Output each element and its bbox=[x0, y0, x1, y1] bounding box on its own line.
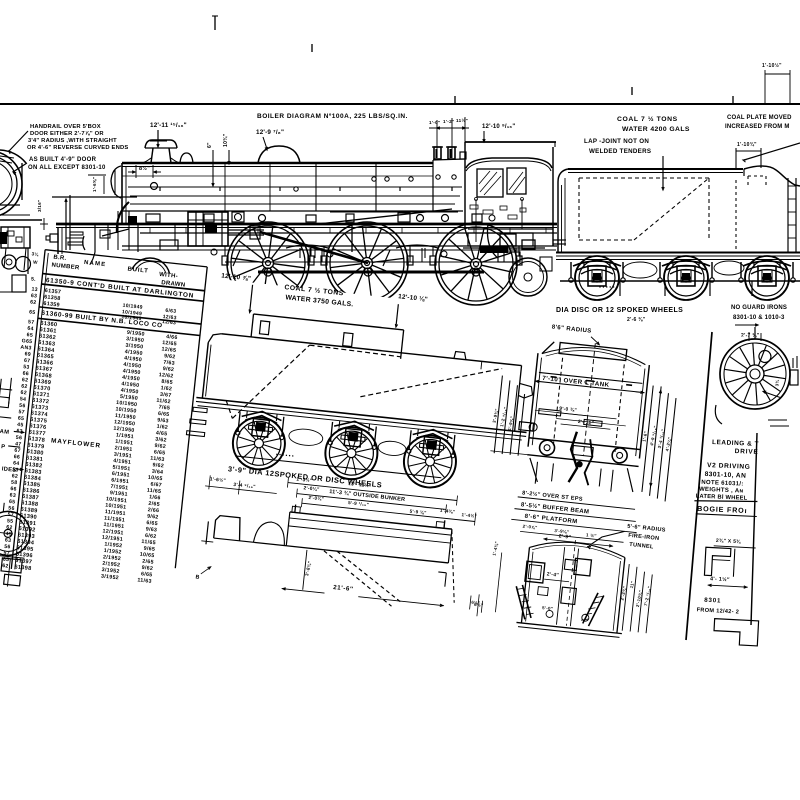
svg-text:1'-6⅝": 1'-6⅝" bbox=[92, 177, 97, 192]
svg-text:OR 4'-6" REVERSE CURVED ENDS: OR 4'-6" REVERSE CURVED ENDS bbox=[27, 145, 128, 151]
svg-text:4'- 1½″: 4'- 1½″ bbox=[710, 575, 730, 583]
svg-text:1'-10¾": 1'-10¾" bbox=[737, 141, 757, 148]
svg-text:P: P bbox=[1, 444, 6, 450]
svg-text:2¾" X 5¾: 2¾" X 5¾ bbox=[716, 537, 742, 545]
svg-text:62: 62 bbox=[2, 563, 9, 570]
svg-text:B: B bbox=[195, 574, 200, 580]
svg-text:WATER 4200 GALS: WATER 4200 GALS bbox=[622, 126, 690, 133]
svg-text:WELDED TENDERS: WELDED TENDERS bbox=[589, 148, 651, 155]
svg-text:3'4" RADIUS ,WITH STRAIGHT: 3'4" RADIUS ,WITH STRAIGHT bbox=[28, 138, 117, 144]
svg-text:AM: AM bbox=[0, 429, 10, 436]
svg-text:12'-10 ⁹/₁₆": 12'-10 ⁹/₁₆" bbox=[482, 124, 515, 130]
svg-text:COAL PLATE MOVED: COAL PLATE MOVED bbox=[727, 115, 792, 121]
svg-text:NO GUARD IRONS: NO GUARD IRONS bbox=[731, 305, 787, 311]
svg-text:1'-10½": 1'-10½" bbox=[762, 62, 782, 69]
svg-text:1'-2": 1'-2" bbox=[443, 119, 454, 124]
svg-text:65: 65 bbox=[29, 309, 36, 316]
svg-text:6½": 6½" bbox=[471, 600, 481, 606]
svg-text:DIA DISC OR 12 SPOKED WHEELS: DIA DISC OR 12 SPOKED WHEELS bbox=[556, 307, 683, 314]
svg-text:62: 62 bbox=[30, 299, 37, 306]
svg-text:6": 6" bbox=[207, 142, 213, 148]
svg-text:W: W bbox=[33, 260, 38, 265]
svg-text:8½": 8½" bbox=[139, 165, 150, 172]
svg-text:HANDRAIL OVER 5'BOX: HANDRAIL OVER 5'BOX bbox=[30, 124, 101, 130]
svg-text:BOILER DIAGRAM Nº100A, 225 LBS: BOILER DIAGRAM Nº100A, 225 LBS/SQ.IN. bbox=[257, 113, 408, 120]
svg-text:2'-6 ⅜": 2'-6 ⅜" bbox=[627, 317, 646, 323]
svg-text:5.: 5. bbox=[31, 276, 37, 283]
svg-text:3¾: 3¾ bbox=[774, 379, 779, 386]
svg-text:ON ALL EXCEPT 8301-10: ON ALL EXCEPT 8301-10 bbox=[28, 165, 106, 171]
svg-text:AS BUILT 4'-9" DOOR: AS BUILT 4'-9" DOOR bbox=[29, 157, 97, 163]
svg-text:DOOR EITHER 2'-7⅞" OR: DOOR EITHER 2'-7⅞" OR bbox=[30, 131, 104, 137]
svg-text:11½": 11½" bbox=[456, 117, 468, 123]
svg-text:3/16": 3/16" bbox=[37, 200, 42, 212]
svg-text:INCREASED FROM M: INCREASED FROM M bbox=[725, 124, 790, 130]
svg-text:DRIVE: DRIVE bbox=[735, 448, 759, 456]
svg-text:8301-10 & 1010-3: 8301-10 & 1010-3 bbox=[733, 315, 785, 321]
svg-text:LAP -JOINT NOT ON: LAP -JOINT NOT ON bbox=[584, 138, 649, 145]
svg-text:12'-11 ¹⁵/₁₆": 12'-11 ¹⁵/₁₆" bbox=[150, 122, 187, 129]
svg-text:10¾": 10¾" bbox=[222, 133, 229, 147]
svg-text:8301: 8301 bbox=[704, 597, 721, 605]
svg-text:12'-9 ⁷/₈": 12'-9 ⁷/₈" bbox=[256, 129, 284, 136]
svg-text:1'-0": 1'-0" bbox=[429, 120, 440, 125]
svg-text:COAL 7 ½ TONS: COAL 7 ½ TONS bbox=[617, 115, 678, 123]
